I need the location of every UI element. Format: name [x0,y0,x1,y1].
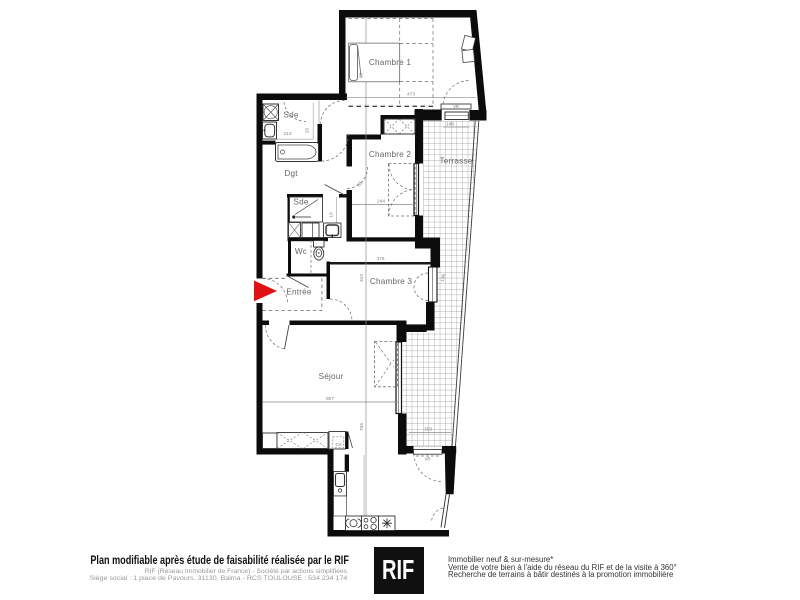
svg-text:35: 35 [356,180,364,188]
svg-text:310: 310 [359,274,365,282]
svg-text:Dgt: Dgt [284,169,298,178]
svg-text:90: 90 [359,73,365,79]
svg-text:473: 473 [407,92,415,98]
svg-text:Chambre 2: Chambre 2 [369,150,412,159]
svg-text:146: 146 [446,122,454,128]
svg-text:Chambre 3: Chambre 3 [370,277,413,286]
svg-text:765: 765 [359,423,365,431]
svg-text:Sde: Sde [293,198,308,207]
svg-text:Chambre 1: Chambre 1 [369,58,412,67]
svg-text:Terrasse: Terrasse [440,157,473,166]
svg-text:907: 907 [326,396,334,402]
svg-text:Wc: Wc [295,247,307,256]
svg-text:10: 10 [329,212,335,218]
svg-text:VR: VR [453,104,459,109]
svg-text:Entrée: Entrée [286,288,312,297]
svg-text:Sde: Sde [283,111,298,120]
svg-text:CH: CH [335,442,341,447]
svg-text:159: 159 [424,427,432,433]
svg-text:244: 244 [377,198,385,204]
svg-text:Séjour: Séjour [319,372,344,381]
svg-text:25: 25 [305,128,311,134]
svg-text:213: 213 [283,131,291,137]
svg-text:376: 376 [376,256,384,262]
svg-text:VR: VR [425,457,431,462]
